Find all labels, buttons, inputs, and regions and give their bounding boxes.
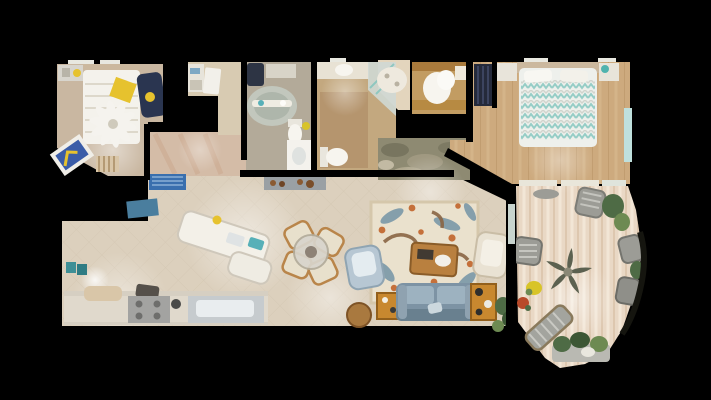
floorplan-3d-view[interactable] [0, 0, 711, 400]
wicker-patio-chair [574, 187, 606, 219]
shelf-items [62, 68, 70, 77]
patio-chairs-left [512, 236, 542, 266]
lanai-glass-door [508, 204, 515, 244]
entry-console-with-shoes [264, 177, 326, 190]
slider-door-frame-3 [602, 180, 626, 186]
seat-cushion [404, 286, 434, 304]
duvet-chevron-pattern [521, 80, 595, 140]
linen-pile-2 [437, 70, 455, 90]
wall-bath1-left [241, 62, 247, 160]
table-tray [417, 249, 434, 260]
vanity-1 [287, 140, 311, 173]
white-door-panel [203, 67, 222, 95]
gray-bench [533, 189, 559, 199]
teal-decor [601, 65, 609, 73]
striped-bench [96, 156, 119, 172]
sofa-arm-left [398, 285, 407, 319]
wood-ottoman [347, 303, 371, 327]
toilet-2 [320, 147, 348, 167]
teal-door-mat [126, 198, 159, 218]
yellow-towel [302, 122, 310, 130]
basket [190, 80, 202, 90]
closet-item [190, 68, 200, 74]
wall-bedroom1-hall [144, 124, 150, 180]
counter-bench [84, 286, 122, 301]
tub-jet [395, 82, 400, 87]
tub-caddy [252, 100, 292, 107]
dark-wardrobe [474, 64, 492, 106]
table-base [305, 246, 317, 258]
nightstand-right [599, 63, 619, 81]
wall-closet-master [466, 58, 473, 142]
corner-tub-room [377, 67, 407, 93]
sink-2 [335, 64, 353, 76]
wall-under-bathrooms [240, 170, 454, 177]
viewer-stage [0, 0, 711, 400]
blue-sofa [396, 283, 476, 321]
wall-bath1-bath2 [311, 62, 317, 176]
nightstand-left [497, 63, 517, 81]
tub-item-white [280, 100, 286, 106]
range-cooktop [128, 296, 170, 323]
corner-tub [377, 67, 407, 93]
blue-armchair [344, 244, 386, 290]
wall-wardrobe [492, 62, 497, 108]
chair-throw [145, 92, 155, 102]
tub-jet [385, 74, 390, 79]
yellow-bowl [213, 216, 222, 225]
orange-console [471, 284, 496, 320]
cream-armchair [472, 231, 511, 279]
patio-planters [552, 332, 610, 362]
bath-counter [266, 64, 296, 78]
seat-cushion [437, 286, 467, 304]
folded-towels [455, 66, 466, 80]
toiletry-bag [247, 63, 264, 86]
pillow-right [560, 69, 589, 82]
slider-door-frame-1 [519, 180, 557, 186]
yellow-shelf-item [73, 69, 81, 77]
slider-door-frame-2 [561, 180, 599, 186]
tub-item-teal [258, 100, 264, 106]
coffee-table [410, 242, 458, 276]
wall-void-closet [163, 60, 188, 124]
master-side-window [624, 108, 632, 162]
pillow-left [524, 69, 553, 83]
kettle [171, 299, 181, 309]
